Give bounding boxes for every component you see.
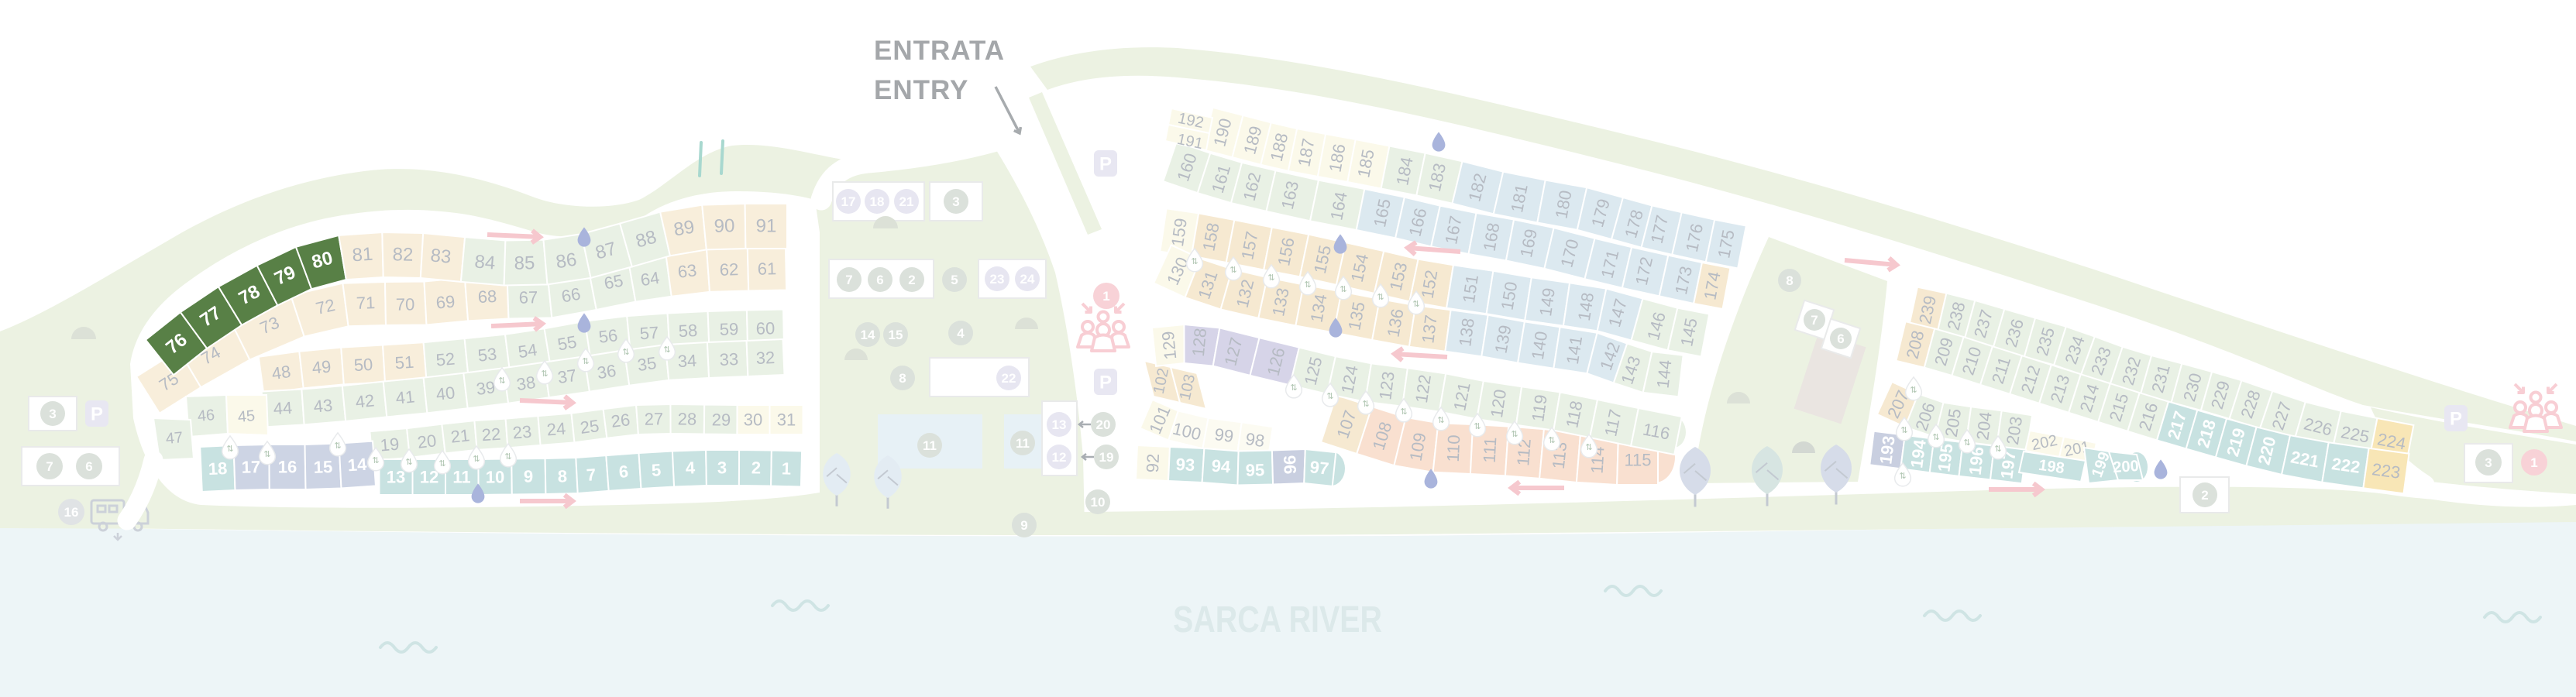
svg-text:23: 23 (512, 422, 532, 443)
svg-text:39: 39 (475, 377, 496, 399)
svg-text:ENTRY: ENTRY (874, 75, 968, 105)
svg-text:62: 62 (719, 259, 738, 280)
svg-text:55: 55 (556, 331, 579, 354)
svg-text:⇅: ⇅ (1412, 300, 1419, 309)
svg-text:94: 94 (1211, 456, 1232, 477)
svg-text:31: 31 (777, 410, 796, 430)
svg-text:21: 21 (899, 194, 914, 209)
svg-text:45: 45 (237, 407, 256, 426)
svg-text:1: 1 (1102, 289, 1109, 304)
svg-text:⇅: ⇅ (1994, 445, 2001, 454)
svg-text:35: 35 (636, 353, 658, 375)
svg-text:3: 3 (717, 458, 727, 478)
svg-text:144: 144 (1653, 359, 1675, 389)
svg-text:ENTRATA: ENTRATA (874, 36, 1005, 66)
svg-text:6: 6 (876, 273, 883, 287)
svg-text:5: 5 (951, 273, 958, 287)
svg-text:66: 66 (560, 284, 583, 307)
svg-text:⇅: ⇅ (1474, 422, 1481, 431)
svg-text:21: 21 (449, 425, 470, 446)
svg-text:57: 57 (639, 323, 659, 344)
svg-text:1: 1 (2530, 455, 2537, 470)
svg-text:47: 47 (165, 429, 184, 448)
svg-text:82: 82 (392, 244, 413, 266)
svg-text:122: 122 (1412, 373, 1435, 404)
svg-text:149: 149 (1536, 287, 1559, 318)
svg-text:83: 83 (429, 245, 452, 267)
svg-text:6: 6 (85, 459, 92, 474)
svg-text:2: 2 (751, 458, 762, 477)
svg-text:115: 115 (1624, 451, 1651, 470)
svg-text:64: 64 (639, 268, 661, 290)
svg-text:60: 60 (755, 318, 775, 338)
svg-text:110: 110 (1443, 434, 1464, 462)
svg-text:⇅: ⇅ (1910, 386, 1917, 395)
svg-text:63: 63 (676, 260, 697, 282)
svg-text:16: 16 (64, 505, 79, 520)
svg-text:58: 58 (678, 321, 698, 341)
svg-text:50: 50 (353, 355, 373, 375)
svg-text:⇅: ⇅ (1585, 443, 1592, 452)
svg-text:52: 52 (435, 348, 456, 369)
svg-text:28: 28 (678, 409, 697, 428)
svg-text:⇅: ⇅ (622, 348, 629, 357)
svg-text:70: 70 (396, 294, 415, 314)
svg-text:7: 7 (46, 459, 53, 474)
svg-text:36: 36 (596, 361, 617, 383)
svg-text:4: 4 (957, 326, 965, 341)
svg-text:10: 10 (486, 467, 505, 486)
svg-text:8: 8 (899, 371, 906, 386)
svg-text:⇅: ⇅ (541, 369, 548, 379)
svg-text:90: 90 (714, 215, 734, 237)
svg-text:33: 33 (719, 349, 738, 369)
svg-text:137: 137 (1418, 314, 1441, 345)
svg-text:54: 54 (517, 340, 538, 362)
svg-text:6: 6 (618, 462, 629, 482)
svg-text:8: 8 (558, 466, 568, 486)
svg-text:20: 20 (416, 431, 437, 452)
svg-text:93: 93 (1175, 455, 1195, 475)
svg-text:200: 200 (2113, 458, 2140, 476)
svg-text:6: 6 (1837, 331, 1844, 346)
svg-text:⇅: ⇅ (663, 345, 670, 355)
svg-text:11: 11 (452, 468, 470, 487)
svg-text:111: 111 (1480, 437, 1501, 464)
svg-text:12: 12 (1052, 450, 1067, 465)
svg-text:⇅: ⇅ (504, 452, 511, 462)
svg-text:10: 10 (1091, 495, 1106, 510)
svg-text:204: 204 (1972, 410, 1995, 441)
svg-text:81: 81 (352, 244, 373, 266)
svg-text:23: 23 (990, 272, 1005, 287)
svg-text:3: 3 (49, 407, 56, 421)
svg-text:18: 18 (208, 458, 228, 479)
svg-text:20: 20 (1096, 417, 1111, 432)
svg-text:26: 26 (610, 410, 631, 431)
svg-text:24: 24 (546, 419, 566, 440)
svg-text:13: 13 (1052, 417, 1067, 432)
svg-text:9: 9 (1020, 518, 1027, 533)
svg-text:⇅: ⇅ (226, 445, 233, 454)
svg-text:40: 40 (435, 383, 456, 404)
svg-text:92: 92 (1143, 453, 1163, 473)
svg-text:84: 84 (474, 251, 497, 273)
svg-text:69: 69 (435, 291, 456, 312)
svg-text:7: 7 (586, 465, 597, 485)
svg-text:67: 67 (519, 287, 538, 307)
svg-text:7: 7 (845, 273, 852, 287)
svg-text:17: 17 (241, 457, 260, 477)
svg-text:⇅: ⇅ (1230, 266, 1236, 275)
svg-text:19: 19 (380, 434, 400, 455)
svg-text:98: 98 (1244, 429, 1266, 451)
svg-text:2: 2 (2201, 488, 2208, 503)
svg-text:53: 53 (477, 344, 498, 365)
svg-text:9: 9 (524, 466, 534, 486)
svg-text:37: 37 (556, 366, 578, 387)
svg-text:22: 22 (481, 424, 501, 445)
svg-text:151: 151 (1459, 273, 1482, 304)
svg-text:SARCA RIVER: SARCA RIVER (1173, 599, 1382, 640)
svg-text:⇅: ⇅ (1963, 438, 1970, 448)
svg-text:13: 13 (387, 468, 405, 487)
svg-text:2: 2 (908, 273, 915, 287)
svg-text:198: 198 (2038, 457, 2065, 477)
svg-text:⇅: ⇅ (1377, 293, 1384, 302)
svg-text:⇅: ⇅ (1437, 416, 1444, 425)
svg-text:4: 4 (685, 458, 696, 477)
svg-text:7: 7 (1811, 313, 1818, 328)
svg-text:17: 17 (841, 194, 856, 209)
svg-text:22: 22 (1002, 371, 1016, 386)
svg-text:56: 56 (597, 325, 618, 347)
svg-text:P: P (1099, 373, 1112, 393)
svg-text:25: 25 (579, 416, 600, 438)
svg-text:44: 44 (273, 398, 293, 418)
svg-text:3: 3 (2485, 455, 2492, 470)
svg-text:⇅: ⇅ (1511, 430, 1518, 439)
svg-text:61: 61 (757, 259, 776, 279)
svg-text:97: 97 (1309, 457, 1330, 478)
svg-text:30: 30 (744, 410, 762, 430)
svg-text:⇅: ⇅ (582, 357, 589, 366)
svg-text:159: 159 (1168, 217, 1191, 248)
svg-text:34: 34 (677, 351, 697, 371)
svg-text:P: P (1099, 154, 1112, 175)
svg-text:38: 38 (515, 373, 537, 394)
svg-text:68: 68 (477, 287, 497, 307)
svg-text:⇅: ⇅ (1340, 285, 1346, 294)
svg-text:⇅: ⇅ (1304, 280, 1311, 290)
svg-text:43: 43 (313, 396, 334, 417)
svg-text:85: 85 (514, 252, 535, 274)
svg-text:8: 8 (1786, 273, 1793, 288)
svg-text:42: 42 (355, 390, 376, 411)
svg-text:91: 91 (756, 216, 777, 237)
svg-text:49: 49 (311, 356, 332, 377)
svg-text:138: 138 (1455, 317, 1478, 348)
svg-text:5: 5 (651, 460, 662, 480)
svg-text:27: 27 (644, 409, 663, 429)
svg-text:48: 48 (270, 362, 292, 383)
svg-text:24: 24 (1020, 272, 1035, 287)
svg-text:⇅: ⇅ (1290, 383, 1297, 393)
svg-text:89: 89 (672, 216, 696, 240)
svg-text:96: 96 (1280, 455, 1300, 474)
svg-text:⇅: ⇅ (1267, 273, 1274, 283)
svg-text:11: 11 (923, 438, 937, 453)
svg-text:⇅: ⇅ (334, 441, 341, 451)
svg-text:⇅: ⇅ (372, 456, 379, 465)
svg-text:99: 99 (1213, 424, 1234, 446)
svg-text:95: 95 (1245, 460, 1264, 480)
svg-text:123: 123 (1375, 370, 1398, 401)
svg-text:⇅: ⇅ (1900, 426, 1907, 435)
svg-text:⇅: ⇅ (405, 458, 412, 467)
svg-text:41: 41 (395, 386, 416, 407)
svg-text:19: 19 (1099, 450, 1114, 465)
svg-text:222: 222 (2330, 454, 2361, 477)
svg-text:86: 86 (555, 249, 578, 273)
svg-text:16: 16 (278, 458, 297, 477)
svg-text:⇅: ⇅ (263, 450, 270, 459)
svg-text:193: 193 (1876, 434, 1898, 465)
svg-text:⇅: ⇅ (473, 455, 480, 464)
svg-text:14: 14 (861, 328, 875, 342)
svg-text:129: 129 (1158, 330, 1181, 360)
svg-text:18: 18 (870, 194, 885, 209)
svg-text:⇅: ⇅ (1548, 436, 1555, 445)
svg-text:29: 29 (712, 410, 731, 429)
svg-text:223: 223 (2371, 459, 2402, 482)
svg-text:3: 3 (952, 194, 959, 209)
svg-text:⇅: ⇅ (1326, 392, 1333, 401)
svg-text:71: 71 (356, 293, 375, 313)
svg-text:⇅: ⇅ (498, 376, 505, 386)
svg-text:32: 32 (755, 348, 776, 368)
svg-text:51: 51 (394, 352, 414, 373)
svg-text:119: 119 (1528, 393, 1551, 423)
svg-text:59: 59 (719, 319, 738, 339)
svg-text:194: 194 (1907, 438, 1930, 469)
svg-text:⇅: ⇅ (1932, 433, 1939, 442)
svg-text:11: 11 (1016, 436, 1030, 451)
svg-text:⇅: ⇅ (1362, 400, 1369, 409)
svg-text:1: 1 (782, 458, 792, 478)
svg-text:⇅: ⇅ (1899, 472, 1906, 481)
svg-text:14: 14 (347, 455, 368, 476)
svg-text:46: 46 (197, 407, 215, 425)
svg-text:P: P (91, 404, 103, 425)
svg-text:⇅: ⇅ (1191, 257, 1198, 266)
svg-text:P: P (2450, 409, 2462, 430)
svg-text:⇅: ⇅ (1400, 407, 1407, 417)
svg-text:⇅: ⇅ (439, 459, 445, 469)
svg-text:15: 15 (313, 457, 332, 477)
svg-text:15: 15 (889, 328, 903, 342)
svg-text:128: 128 (1188, 328, 1210, 358)
